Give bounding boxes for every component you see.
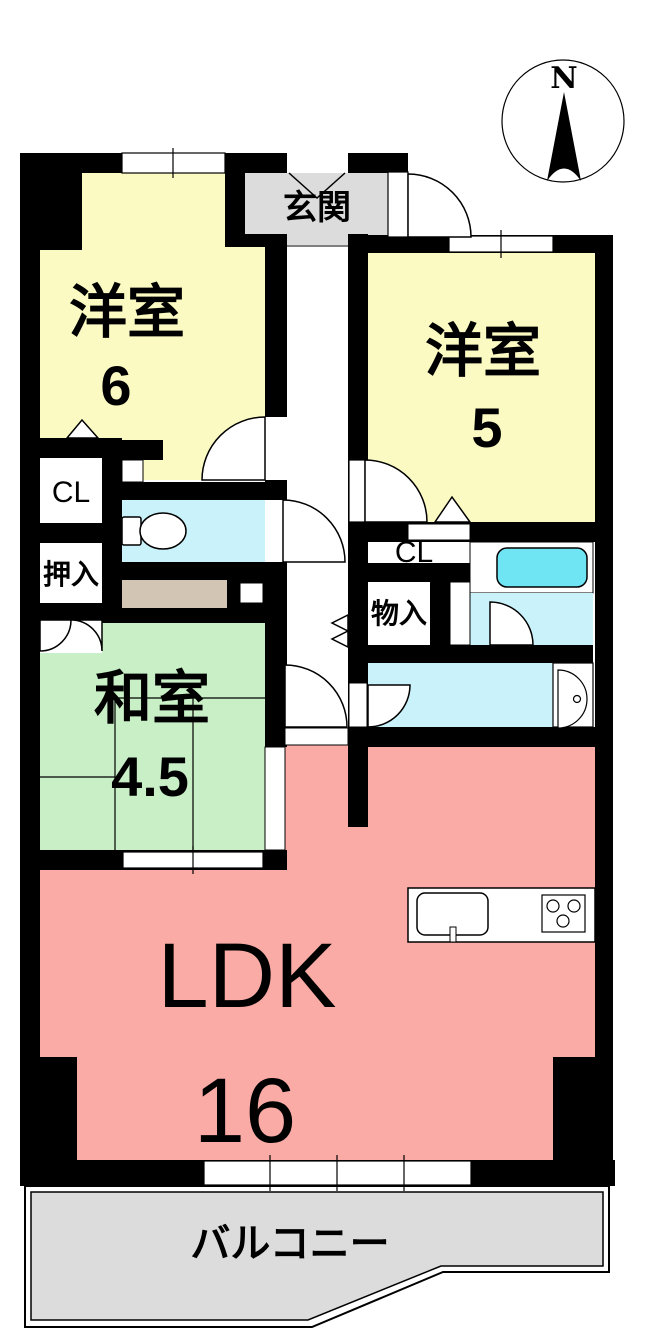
floor-plan-svg: N 玄関 洋室 6 洋室 5 和室 4.5 LDK 16 バルコニー CL 押入… bbox=[0, 0, 654, 1330]
storage-step bbox=[122, 580, 227, 608]
western-room-5-label: 洋室 bbox=[425, 319, 541, 384]
entrance-label: 玄関 bbox=[283, 189, 351, 227]
toilet-icon bbox=[122, 513, 186, 549]
japanese-room-label: 和室 bbox=[94, 666, 210, 731]
japanese-room-size: 4.5 bbox=[111, 745, 189, 808]
japanese-ldk-opening bbox=[265, 747, 285, 850]
entry-door-leaf bbox=[388, 172, 408, 237]
hall-ldk-opening bbox=[285, 728, 348, 745]
western-room-6-size: 6 bbox=[100, 354, 131, 417]
entry-door-arc bbox=[408, 174, 471, 237]
washbasin-icon bbox=[553, 663, 593, 728]
western-room-6-label: 洋室 bbox=[69, 280, 185, 345]
compass-north-label: N bbox=[550, 61, 577, 96]
storage-folding-door-top bbox=[332, 615, 348, 631]
oshiire-label: 押入 bbox=[43, 558, 99, 590]
toilet-door-arc bbox=[283, 500, 345, 562]
entry-door-opening bbox=[287, 153, 348, 173]
ldk-size: 16 bbox=[194, 1060, 296, 1162]
bathtub-icon bbox=[497, 548, 587, 587]
japanese-room-floor bbox=[40, 623, 265, 850]
storage-folding-door-bottom bbox=[332, 631, 348, 647]
bath-door-leaf bbox=[450, 582, 470, 645]
hall-ldk-door-arc bbox=[285, 665, 347, 727]
west6-door-gap bbox=[265, 417, 287, 480]
closet-right-label: CL bbox=[395, 536, 433, 569]
wall-niche bbox=[240, 583, 263, 603]
storage-label: 物入 bbox=[371, 598, 427, 629]
balcony-label: バルコニー bbox=[190, 1222, 389, 1266]
floor-plan: N 玄関 洋室 6 洋室 5 和室 4.5 LDK 16 バルコニー CL 押入… bbox=[0, 0, 654, 1330]
west5-door-leaf bbox=[349, 460, 365, 522]
toilet-service-gap bbox=[122, 460, 143, 482]
closet-left-label: CL bbox=[52, 476, 90, 509]
ldk-label: LDK bbox=[158, 925, 337, 1027]
kitchen-faucet-icon bbox=[450, 927, 456, 942]
stove-icon bbox=[542, 895, 585, 932]
washroom-door-leaf bbox=[349, 683, 367, 727]
compass: N bbox=[502, 60, 624, 182]
kitchen-counter-icon bbox=[408, 888, 595, 942]
western-room-5-size: 5 bbox=[471, 396, 502, 459]
